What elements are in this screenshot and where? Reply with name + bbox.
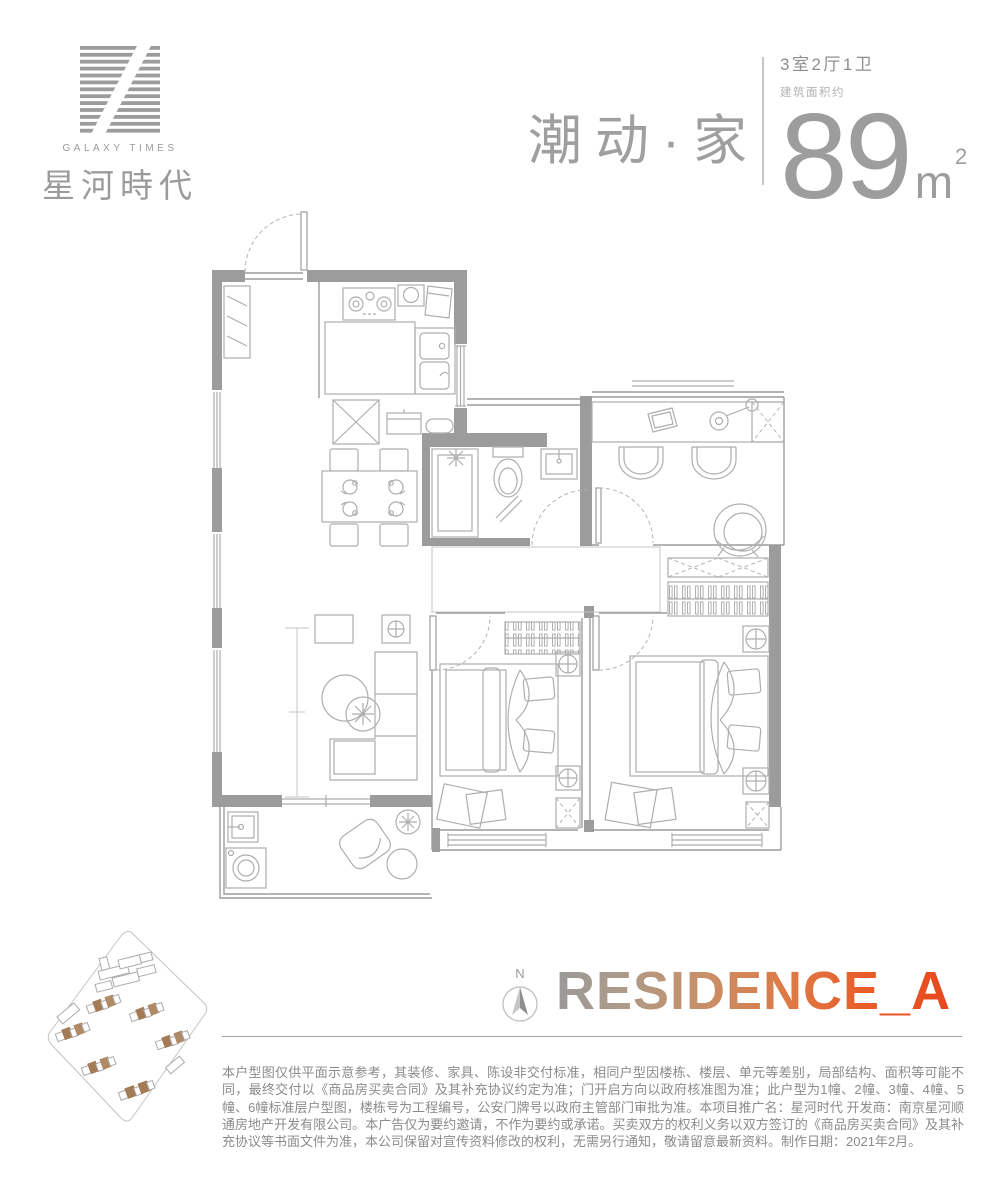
dining-area bbox=[322, 449, 417, 546]
brand-name-cn: 星河時代 bbox=[40, 159, 200, 207]
dining-chair-icon bbox=[330, 524, 358, 546]
brand-name-en: GALAXY TIMES bbox=[40, 143, 200, 154]
bathroom-area bbox=[432, 447, 587, 545]
wardrobe-icon bbox=[505, 622, 580, 654]
brand-logo: GALAXY TIMES 星河時代 bbox=[40, 46, 200, 207]
area-block: 3室2厅1卫 建筑面积约 89 m 2 bbox=[780, 50, 990, 220]
vanity-sink-icon bbox=[541, 449, 577, 479]
desk-chair-icon bbox=[692, 447, 736, 479]
site-building bbox=[81, 1055, 117, 1077]
floor-lamp-icon bbox=[382, 615, 410, 643]
site-podium-buildings bbox=[89, 946, 157, 992]
poster-page: GALAXY TIMES 星河時代 潮动·家 3室2厅1卫 建筑面积约 89 m… bbox=[0, 0, 1000, 1200]
residence-title: RESIDENCE_A bbox=[556, 960, 951, 1022]
plant-icon bbox=[396, 810, 420, 834]
bedroom2-area bbox=[430, 616, 580, 828]
sofa-icon bbox=[330, 652, 417, 780]
compass-n-label: N bbox=[515, 966, 524, 981]
dining-chair-icon bbox=[380, 449, 408, 471]
site-building bbox=[55, 1021, 91, 1043]
rug-icon bbox=[437, 784, 506, 828]
footer-divider bbox=[222, 1036, 962, 1037]
area-exponent: 2 bbox=[955, 144, 967, 170]
double-bed-icon bbox=[440, 664, 558, 776]
compass-icon: N bbox=[490, 964, 550, 1030]
floor-box-icon bbox=[746, 802, 769, 828]
site-plan bbox=[38, 923, 223, 1138]
fridge-icon bbox=[425, 286, 452, 318]
site-gate bbox=[57, 1003, 80, 1024]
floor-plan bbox=[200, 200, 800, 910]
unit-spec: 3室2厅1卫 bbox=[780, 50, 990, 75]
site-building bbox=[86, 993, 122, 1015]
galaxy-times-logo-icon bbox=[80, 46, 160, 134]
area-unit: m bbox=[915, 155, 953, 209]
bathroom-door-icon bbox=[532, 490, 587, 545]
lounge-chair-icon bbox=[714, 504, 766, 557]
desk-icon bbox=[592, 402, 784, 442]
study-door-icon bbox=[596, 488, 653, 543]
laundry-sink-icon bbox=[228, 812, 258, 842]
laptop-icon bbox=[648, 408, 677, 432]
entry-door-icon bbox=[245, 212, 307, 272]
disclaimer-text: 本户型图仅供平面示意参考，其装修、家具、陈设非交付标准，相同户型因楼栋、楼层、单… bbox=[222, 1064, 964, 1150]
site-building bbox=[118, 1079, 156, 1102]
kitchen-round-sink-icon bbox=[398, 285, 424, 306]
side-table-icon bbox=[752, 402, 784, 442]
toilet-icon bbox=[493, 447, 523, 497]
dining-table-icon bbox=[322, 471, 417, 522]
floor-box-icon bbox=[556, 798, 580, 828]
bedroom2-door-icon bbox=[430, 616, 490, 670]
nightstand-lamp-icon bbox=[556, 652, 580, 790]
kitchen-sink-icon bbox=[415, 328, 455, 394]
rug-icon bbox=[605, 782, 676, 827]
nightstand-lamp-icon bbox=[743, 626, 769, 794]
study-area bbox=[592, 399, 784, 557]
bedroom1-area bbox=[593, 616, 769, 828]
area-value: 89 m 2 bbox=[780, 92, 990, 220]
tv-stand-icon bbox=[315, 615, 353, 643]
double-bed-icon bbox=[630, 656, 768, 776]
kitchen-area bbox=[325, 285, 455, 444]
dining-chair-icon bbox=[330, 449, 358, 471]
storage-box-icon bbox=[668, 558, 768, 577]
desk-chair-icon bbox=[619, 447, 663, 479]
site-building bbox=[155, 1029, 191, 1051]
header-divider bbox=[762, 57, 764, 185]
site-building bbox=[129, 1001, 165, 1023]
wardrobe-icon bbox=[668, 582, 768, 616]
curtain-line bbox=[285, 628, 309, 797]
balcony-chair-icon bbox=[336, 816, 394, 872]
dining-chair-icon bbox=[380, 524, 408, 546]
shoe-cabinet-icon bbox=[224, 286, 250, 358]
kitchen-island-icon bbox=[325, 322, 415, 394]
slogan-text: 潮动·家 bbox=[528, 96, 760, 175]
living-area bbox=[285, 615, 417, 797]
balcony-area bbox=[226, 810, 420, 888]
washing-machine-icon bbox=[226, 848, 266, 888]
site-gate bbox=[166, 1056, 185, 1074]
shower-icon bbox=[432, 449, 522, 537]
desk-lamp-icon bbox=[710, 399, 758, 430]
round-table-icon bbox=[387, 849, 417, 879]
stove-icon bbox=[343, 288, 395, 320]
